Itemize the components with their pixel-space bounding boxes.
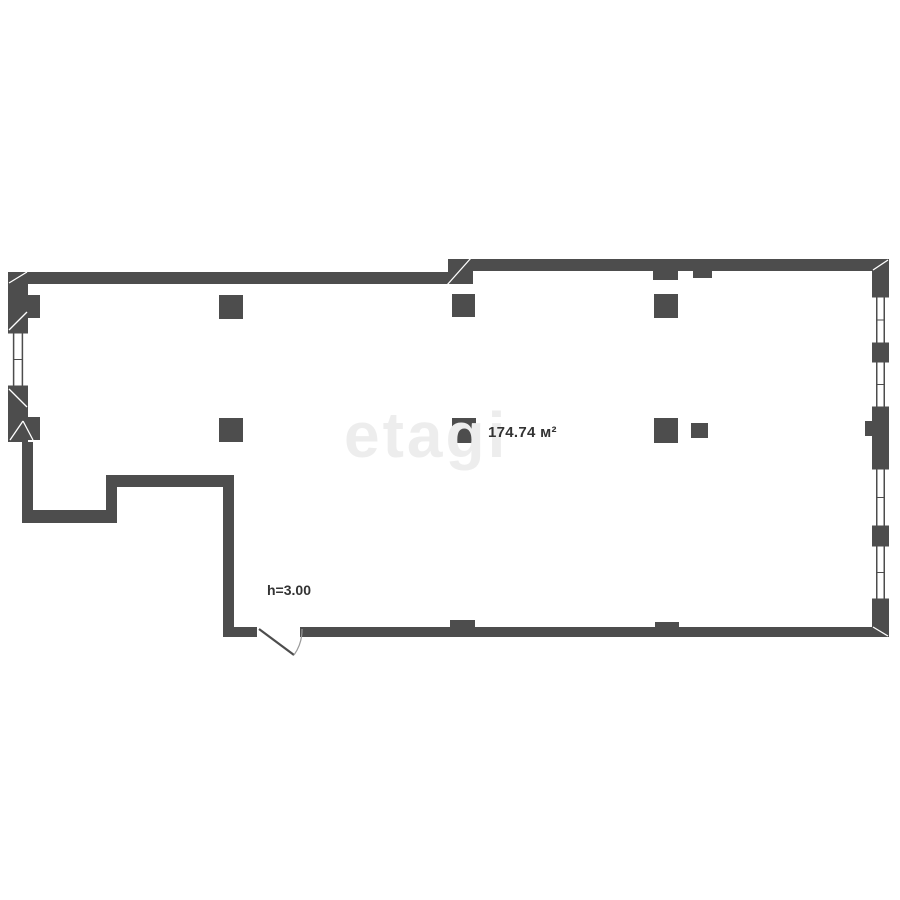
wall-segment	[223, 475, 234, 637]
watermark-logo: etagi	[344, 398, 508, 472]
wall-pilaster	[693, 271, 712, 278]
floor-plan-page: etagi 174.74 м² h=3.00	[0, 0, 900, 900]
wall-segment	[872, 344, 889, 361]
column	[452, 294, 475, 317]
column	[219, 418, 243, 442]
wall-pilaster	[865, 421, 873, 436]
wall-segment	[225, 627, 889, 637]
wall-segment	[872, 408, 889, 468]
wall-segment	[106, 475, 234, 487]
wall-pilaster	[655, 622, 679, 630]
ceiling-height-label: h=3.00	[267, 582, 311, 598]
wall-pilaster	[28, 417, 40, 440]
wall-segment	[872, 527, 889, 545]
wall-segment	[8, 387, 28, 442]
wall-segment	[448, 259, 889, 271]
room-area-label: 174.74 м²	[488, 424, 557, 441]
wall-segment	[8, 272, 473, 284]
column	[654, 294, 678, 318]
wall-segment	[8, 272, 28, 332]
column	[654, 418, 678, 443]
wall-pilaster	[28, 295, 40, 318]
wall-pilaster	[653, 271, 678, 280]
column	[691, 423, 708, 438]
wall-segment	[22, 510, 117, 523]
column	[219, 295, 243, 319]
wall-pilaster	[450, 620, 475, 628]
